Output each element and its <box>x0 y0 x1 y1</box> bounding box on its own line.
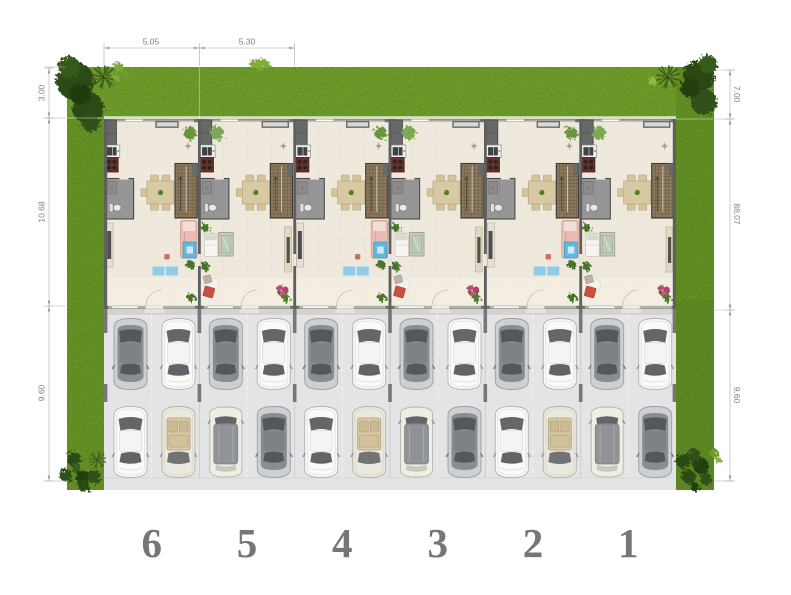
svg-text:3: 3 <box>427 520 448 566</box>
svg-text:5.05: 5.05 <box>143 37 160 47</box>
svg-text:9.60: 9.60 <box>37 384 47 401</box>
svg-text:7.00: 7.00 <box>732 86 742 103</box>
svg-text:9.60: 9.60 <box>732 387 742 404</box>
svg-text:5.30: 5.30 <box>239 37 256 47</box>
svg-text:4: 4 <box>332 520 353 566</box>
svg-text:1: 1 <box>618 520 639 566</box>
svg-text:6: 6 <box>141 520 162 566</box>
svg-text:10.68: 10.68 <box>37 201 47 223</box>
svg-text:2: 2 <box>523 520 544 566</box>
svg-text:5: 5 <box>237 520 258 566</box>
svg-text:3.00: 3.00 <box>37 84 47 101</box>
svg-text:88.07: 88.07 <box>732 203 742 225</box>
